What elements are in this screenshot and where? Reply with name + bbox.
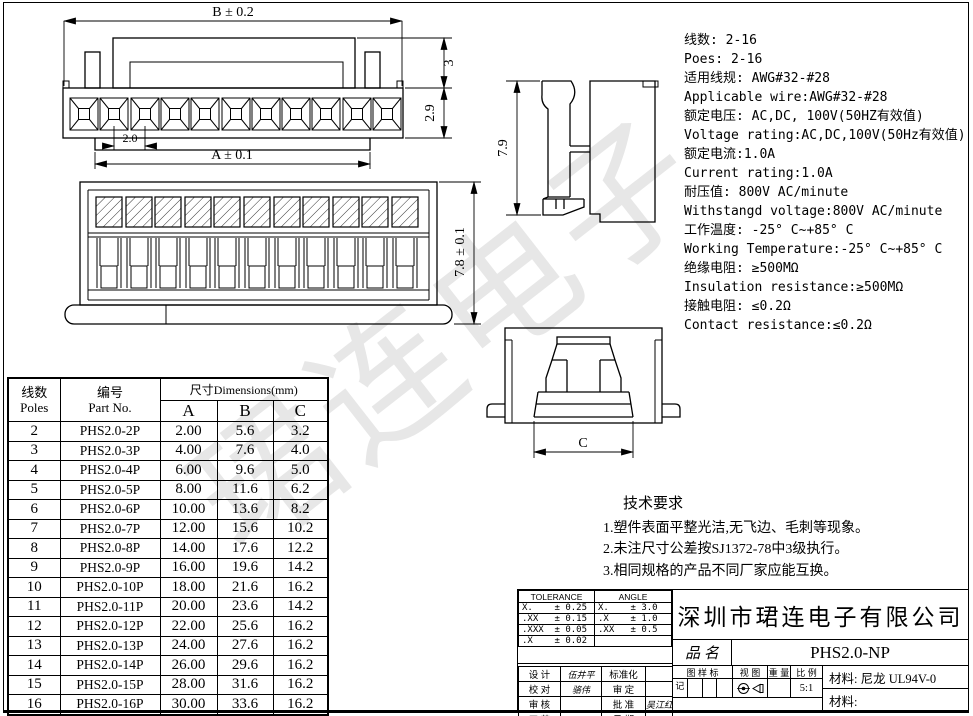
drawing-sheet: 珺连电子 bbox=[0, 0, 973, 716]
table-cell-part: PHS2.0-14P bbox=[60, 656, 160, 676]
material-1: 材料: 尼龙 UL94V-0 bbox=[823, 666, 968, 689]
table-row: 12PHS2.0-12P22.0025.616.2 bbox=[8, 617, 328, 637]
table-row: 5PHS2.0-5P8.0011.66.2 bbox=[8, 480, 328, 500]
table-cell-a: 30.00 bbox=[160, 695, 217, 715]
signature-table: 设 计 伍井平 标准化 校 对 骆伟 审 定 审 核 批 准 吴江红 bbox=[518, 666, 673, 716]
drawing-mark-label2: 记 bbox=[673, 679, 688, 697]
table-cell-poles: 7 bbox=[8, 519, 60, 539]
sig-name-approve: 吴江红 bbox=[646, 697, 673, 712]
spec-line: 工作温度: -25° C~+85° C bbox=[684, 221, 966, 240]
spec-line: 额定电压: AC,DC, 100V(50HZ有效值) bbox=[684, 107, 966, 126]
spec-list: 线数: 2-16Poes: 2-16适用线规: AWG#32-#28Applic… bbox=[684, 31, 966, 335]
table-cell-part: PHS2.0-16P bbox=[60, 695, 160, 715]
sig-label-check: 校 对 bbox=[519, 682, 561, 697]
drawing-mark-subcells: 记 bbox=[673, 679, 732, 697]
table-cell-a: 28.00 bbox=[160, 675, 217, 695]
tech-requirement-item: 2.未注尺寸公差按SJ1372-78中3级执行。 bbox=[603, 539, 869, 561]
table-row: 10PHS2.0-10P18.0021.616.2 bbox=[8, 578, 328, 598]
table-cell-c: 16.2 bbox=[273, 636, 328, 656]
title-block-bottom: 图 样 标 记 视 图 bbox=[673, 666, 968, 711]
title-block-bottom-strip bbox=[673, 697, 823, 711]
table-cell-a: 12.00 bbox=[160, 519, 217, 539]
weight-label: 重 量 bbox=[768, 666, 790, 679]
product-row: 品 名 PHS2.0-NP bbox=[673, 640, 968, 666]
spec-line: Contact resistance:≤0.2Ω bbox=[684, 316, 966, 335]
spec-line: Withstangd voltage:800V AC/minute bbox=[684, 202, 966, 221]
table-cell-poles: 10 bbox=[8, 578, 60, 598]
dim-label-front-height: 2.9 bbox=[423, 104, 438, 122]
drawing-mark-empty bbox=[717, 679, 732, 697]
dim-label-rear-height: 7.8 ± 0.1 bbox=[453, 227, 468, 277]
table-cell-part: PHS2.0-9P bbox=[60, 558, 160, 578]
table-cell-c: 6.2 bbox=[273, 480, 328, 500]
tech-requirement-item: 3.相同规格的产品不同厂家应能互换。 bbox=[603, 561, 869, 583]
table-cell-c: 16.2 bbox=[273, 675, 328, 695]
title-block: TOLERANCE ANGLE X. ± 0.25 X. ± 3.0 .XX ±… bbox=[517, 589, 969, 713]
scale-value: 5:1 bbox=[791, 679, 822, 697]
spec-line: Applicable wire:AWG#32-#28 bbox=[684, 88, 966, 107]
table-cell-a: 20.00 bbox=[160, 597, 217, 617]
header-col-a: A bbox=[160, 401, 217, 422]
dimensions-table: 线数 Poles 编号 Part No. 尺寸Dimensions(mm) A … bbox=[7, 377, 329, 716]
table-cell-b: 11.6 bbox=[217, 480, 273, 500]
table-cell-c: 16.2 bbox=[273, 578, 328, 598]
spec-line: 额定电流:1.0A bbox=[684, 145, 966, 164]
sig-name-design: 伍井平 bbox=[561, 667, 602, 682]
materials-cell: 材料: 尼龙 UL94V-0 材料: bbox=[823, 666, 968, 711]
header-poles-cn: 线数 bbox=[21, 385, 47, 400]
table-row: 2PHS2.0-2P2.005.63.2 bbox=[8, 422, 328, 442]
table-cell-poles: 12 bbox=[8, 617, 60, 637]
table-cell-part: PHS2.0-13P bbox=[60, 636, 160, 656]
table-cell-a: 6.00 bbox=[160, 461, 217, 481]
table-cell-poles: 14 bbox=[8, 656, 60, 676]
table-cell-b: 19.6 bbox=[217, 558, 273, 578]
table-cell-poles: 8 bbox=[8, 539, 60, 559]
table-cell-a: 2.00 bbox=[160, 422, 217, 442]
tech-requirements-list: 1.塑件表面平整光洁,无飞边、毛刺等现象。2.未注尺寸公差按SJ1372-78中… bbox=[603, 518, 869, 583]
spec-line: Voltage rating:AC,DC,100V(50Hz有效值) bbox=[684, 126, 966, 145]
rear-view: 7.8 ± 0.1 bbox=[65, 182, 481, 324]
projection-view-label: 视 图 bbox=[733, 666, 767, 679]
table-row: 7PHS2.0-7P12.0015.610.2 bbox=[8, 519, 328, 539]
dim-label-back-height: 3 bbox=[442, 60, 457, 67]
table-cell-part: PHS2.0-12P bbox=[60, 617, 160, 637]
dim-label-b: B ± 0.2 bbox=[212, 5, 254, 20]
table-row: 11PHS2.0-11P20.0023.614.2 bbox=[8, 597, 328, 617]
sig-label-date: 日 期 bbox=[602, 712, 646, 716]
table-cell-b: 7.6 bbox=[217, 441, 273, 461]
table-cell-poles: 16 bbox=[8, 695, 60, 715]
sig-label-examine: 审 定 bbox=[602, 682, 646, 697]
table-cell-b: 31.6 bbox=[217, 675, 273, 695]
table-cell-a: 24.00 bbox=[160, 636, 217, 656]
angle-row: X. ± 3.0 bbox=[595, 603, 672, 614]
table-row: 13PHS2.0-13P24.0027.616.2 bbox=[8, 636, 328, 656]
tolerance-row: .XXX ± 0.05 bbox=[519, 625, 595, 636]
table-cell-a: 14.00 bbox=[160, 539, 217, 559]
sig-date-value: 2013.11.27 bbox=[646, 712, 673, 716]
table-cell-poles: 5 bbox=[8, 480, 60, 500]
sig-name-examine bbox=[646, 682, 673, 697]
company-name: 深圳市珺连电子有限公司 bbox=[673, 590, 968, 640]
table-cell-b: 13.6 bbox=[217, 500, 273, 520]
table-cell-poles: 13 bbox=[8, 636, 60, 656]
dim-label-side-height: 7.9 bbox=[496, 139, 511, 157]
table-cell-b: 29.6 bbox=[217, 656, 273, 676]
spec-line: Current rating:1.0A bbox=[684, 164, 966, 183]
tolerance-table: TOLERANCE ANGLE X. ± 0.25 X. ± 3.0 .XX ±… bbox=[518, 590, 672, 647]
tech-requirement-item: 1.塑件表面平整光洁,无飞边、毛刺等现象。 bbox=[603, 518, 869, 540]
tech-requirements: 技术要求 1.塑件表面平整光洁,无飞边、毛刺等现象。2.未注尺寸公差按SJ137… bbox=[603, 494, 869, 582]
table-cell-b: 23.6 bbox=[217, 597, 273, 617]
header-part-no: 编号 Part No. bbox=[60, 378, 160, 422]
tolerance-row: .XX ± 0.15 bbox=[519, 614, 595, 625]
table-cell-part: PHS2.0-6P bbox=[60, 500, 160, 520]
table-cell-poles: 11 bbox=[8, 597, 60, 617]
table-cell-part: PHS2.0-5P bbox=[60, 480, 160, 500]
table-cell-poles: 9 bbox=[8, 558, 60, 578]
spec-line: 接触电阻: ≤0.2Ω bbox=[684, 297, 966, 316]
table-cell-poles: 6 bbox=[8, 500, 60, 520]
angle-row: .X ± 1.0 bbox=[595, 614, 672, 625]
table-cell-c: 8.2 bbox=[273, 500, 328, 520]
table-cell-part: PHS2.0-10P bbox=[60, 578, 160, 598]
table-cell-part: PHS2.0-8P bbox=[60, 539, 160, 559]
angle-row: .XX ± 0.5 bbox=[595, 625, 672, 636]
table-row: 6PHS2.0-6P10.0013.68.2 bbox=[8, 500, 328, 520]
table-cell-b: 21.6 bbox=[217, 578, 273, 598]
table-cell-c: 3.2 bbox=[273, 422, 328, 442]
table-row: 4PHS2.0-4P6.009.65.0 bbox=[8, 461, 328, 481]
dim-label-c: C bbox=[578, 436, 587, 451]
dim-label-pitch: 2.0 bbox=[123, 131, 138, 145]
sig-name-check: 骆伟 bbox=[561, 682, 602, 697]
weight-cell: 重 量 bbox=[768, 666, 791, 697]
side-view: 7.9 bbox=[496, 81, 658, 222]
table-row: 9PHS2.0-9P16.0019.614.2 bbox=[8, 558, 328, 578]
sig-label-review: 审 核 bbox=[519, 697, 561, 712]
table-row: 16PHS2.0-16P30.0033.616.2 bbox=[8, 695, 328, 715]
sig-name-process bbox=[561, 712, 602, 716]
header-dimensions: 尺寸Dimensions(mm) bbox=[160, 378, 328, 401]
tolerance-header: TOLERANCE bbox=[519, 591, 595, 603]
table-cell-a: 10.00 bbox=[160, 500, 217, 520]
table-row: 15PHS2.0-15P28.0031.616.2 bbox=[8, 675, 328, 695]
sig-label-process: 工 艺 bbox=[519, 712, 561, 716]
spec-line: 适用线规: AWG#32-#28 bbox=[684, 69, 966, 88]
spec-line: Working Temperature:-25° C~+85° C bbox=[684, 240, 966, 259]
spec-line: 线数: 2-16 bbox=[684, 31, 966, 50]
table-cell-a: 4.00 bbox=[160, 441, 217, 461]
title-block-right: 深圳市珺连电子有限公司 品 名 PHS2.0-NP 图 样 标 记 视 图 bbox=[673, 590, 968, 712]
table-cell-c: 16.2 bbox=[273, 695, 328, 715]
table-row: 3PHS2.0-3P4.007.64.0 bbox=[8, 441, 328, 461]
table-cell-part: PHS2.0-3P bbox=[60, 441, 160, 461]
table-cell-b: 33.6 bbox=[217, 695, 273, 715]
scale-label: 比 例 bbox=[791, 666, 822, 679]
table-cell-c: 10.2 bbox=[273, 519, 328, 539]
table-cell-c: 12.2 bbox=[273, 539, 328, 559]
scale-cell: 比 例 5:1 bbox=[791, 666, 823, 697]
table-cell-part: PHS2.0-11P bbox=[60, 597, 160, 617]
spec-line: 绝缘电阻: ≥500MΩ bbox=[684, 259, 966, 278]
header-col-b: B bbox=[217, 401, 273, 422]
table-cell-a: 22.00 bbox=[160, 617, 217, 637]
angle-header: ANGLE bbox=[595, 591, 672, 603]
tolerance-row: .X ± 0.02 bbox=[519, 636, 595, 647]
angle-row bbox=[595, 636, 672, 647]
tech-requirements-title: 技术要求 bbox=[603, 494, 869, 516]
table-cell-b: 25.6 bbox=[217, 617, 273, 637]
dim-label-a: A ± 0.1 bbox=[211, 148, 253, 163]
table-cell-poles: 2 bbox=[8, 422, 60, 442]
tolerance-row: X. ± 0.25 bbox=[519, 603, 595, 614]
sig-name-review bbox=[561, 697, 602, 712]
sig-label-approve: 批 准 bbox=[602, 697, 646, 712]
spec-line: Poes: 2-16 bbox=[684, 50, 966, 69]
header-col-c: C bbox=[273, 401, 328, 422]
table-cell-a: 8.00 bbox=[160, 480, 217, 500]
table-cell-b: 27.6 bbox=[217, 636, 273, 656]
table-cell-part: PHS2.0-2P bbox=[60, 422, 160, 442]
table-cell-poles: 15 bbox=[8, 675, 60, 695]
header-poles-en: Poles bbox=[20, 400, 48, 415]
spec-line: Insulation resistance:≥500MΩ bbox=[684, 278, 966, 297]
title-block-left: TOLERANCE ANGLE X. ± 0.25 X. ± 3.0 .XX ±… bbox=[518, 590, 673, 712]
front-view: B ± 0.2 2.0 A ± 0.1 3 2.9 bbox=[63, 5, 457, 169]
table-cell-part: PHS2.0-7P bbox=[60, 519, 160, 539]
table-cell-a: 16.00 bbox=[160, 558, 217, 578]
header-part-en: Part No. bbox=[88, 400, 131, 415]
spec-line: 耐压值: 800V AC/minute bbox=[684, 183, 966, 202]
drawing-mark-empty bbox=[688, 679, 703, 697]
table-cell-c: 16.2 bbox=[273, 656, 328, 676]
header-part-cn: 编号 bbox=[97, 385, 123, 400]
product-name: PHS2.0-NP bbox=[732, 640, 968, 665]
title-block-empty-row bbox=[518, 650, 672, 664]
drawing-mark-empty bbox=[703, 679, 718, 697]
table-cell-b: 9.6 bbox=[217, 461, 273, 481]
table-cell-a: 26.00 bbox=[160, 656, 217, 676]
table-cell-c: 4.0 bbox=[273, 441, 328, 461]
table-cell-part: PHS2.0-4P bbox=[60, 461, 160, 481]
header-poles: 线数 Poles bbox=[8, 378, 60, 422]
sig-label-design: 设 计 bbox=[519, 667, 561, 682]
end-view: C bbox=[487, 328, 680, 458]
table-cell-b: 15.6 bbox=[217, 519, 273, 539]
projection-symbol-icon bbox=[733, 679, 767, 697]
table-row: 8PHS2.0-8P14.0017.612.2 bbox=[8, 539, 328, 559]
table-cell-b: 5.6 bbox=[217, 422, 273, 442]
product-label: 品 名 bbox=[673, 640, 732, 665]
table-cell-c: 16.2 bbox=[273, 617, 328, 637]
table-cell-c: 14.2 bbox=[273, 558, 328, 578]
table-cell-poles: 4 bbox=[8, 461, 60, 481]
table-cell-a: 18.00 bbox=[160, 578, 217, 598]
table-row: 14PHS2.0-14P26.0029.616.2 bbox=[8, 656, 328, 676]
table-cell-c: 5.0 bbox=[273, 461, 328, 481]
dimensions-table-body: 2PHS2.0-2P2.005.63.23PHS2.0-3P4.007.64.0… bbox=[8, 422, 328, 715]
sig-name-standardize bbox=[646, 667, 673, 682]
table-cell-part: PHS2.0-15P bbox=[60, 675, 160, 695]
table-cell-poles: 3 bbox=[8, 441, 60, 461]
material-2: 材料: bbox=[823, 689, 968, 711]
table-cell-c: 14.2 bbox=[273, 597, 328, 617]
drawing-mark-cell: 图 样 标 记 bbox=[673, 666, 733, 697]
sig-label-standardize: 标准化 bbox=[602, 667, 646, 682]
projection-view-cell: 视 图 bbox=[733, 666, 768, 697]
drawing-mark-label: 图 样 标 bbox=[673, 666, 732, 679]
table-cell-b: 17.6 bbox=[217, 539, 273, 559]
